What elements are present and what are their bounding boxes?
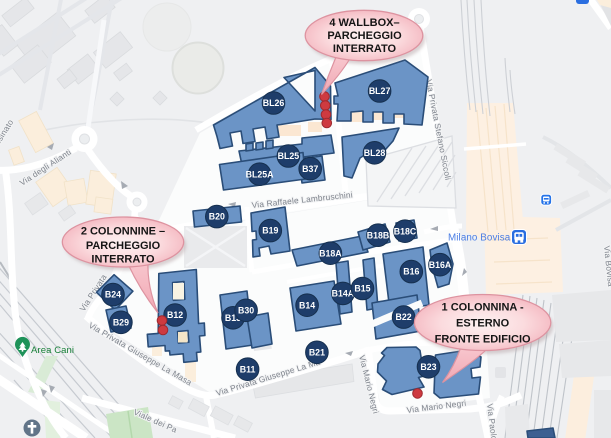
- svg-text:B23: B23: [420, 362, 436, 372]
- svg-text:BL27: BL27: [369, 86, 391, 96]
- svg-text:B11: B11: [240, 364, 256, 374]
- svg-text:INTERRATO: INTERRATO: [333, 43, 397, 55]
- svg-text:B20: B20: [209, 212, 225, 222]
- svg-text:BL26: BL26: [263, 98, 285, 108]
- svg-text:FRONTE EDIFICIO: FRONTE EDIFICIO: [435, 334, 531, 346]
- svg-text:B16: B16: [403, 267, 419, 277]
- svg-text:BL25A: BL25A: [246, 169, 275, 179]
- svg-text:B16A: B16A: [429, 260, 452, 270]
- svg-text:BL25: BL25: [278, 151, 300, 161]
- svg-text:B37: B37: [302, 164, 318, 174]
- svg-text:B12: B12: [167, 310, 183, 320]
- svg-text:B30: B30: [238, 305, 254, 315]
- svg-text:ESTERNO: ESTERNO: [456, 318, 510, 330]
- svg-text:INTERRATO: INTERRATO: [91, 254, 155, 266]
- svg-text:B29: B29: [113, 317, 129, 327]
- svg-text:B19: B19: [262, 226, 278, 236]
- svg-text:B18B: B18B: [367, 230, 390, 240]
- svg-text:B14: B14: [299, 300, 315, 310]
- svg-text:B18A: B18A: [319, 248, 342, 258]
- svg-text:B21: B21: [309, 347, 325, 357]
- svg-text:B18C: B18C: [394, 226, 417, 236]
- svg-text:B22: B22: [396, 312, 412, 322]
- svg-text:PARCHEGGIO: PARCHEGGIO: [86, 240, 161, 252]
- svg-text:1 COLONNINA -: 1 COLONNINA -: [442, 302, 524, 314]
- svg-text:BL28: BL28: [364, 148, 386, 158]
- svg-text:2 COLONNINE –: 2 COLONNINE –: [81, 226, 165, 238]
- svg-text:Milano Bovisa: Milano Bovisa: [448, 233, 511, 244]
- svg-text:PARCHEGGIO: PARCHEGGIO: [327, 30, 402, 42]
- svg-text:B15: B15: [354, 284, 370, 294]
- svg-text:B24: B24: [105, 290, 121, 300]
- svg-text:Area Cani: Area Cani: [31, 345, 74, 356]
- svg-text:4 WALLBOX–: 4 WALLBOX–: [329, 17, 399, 29]
